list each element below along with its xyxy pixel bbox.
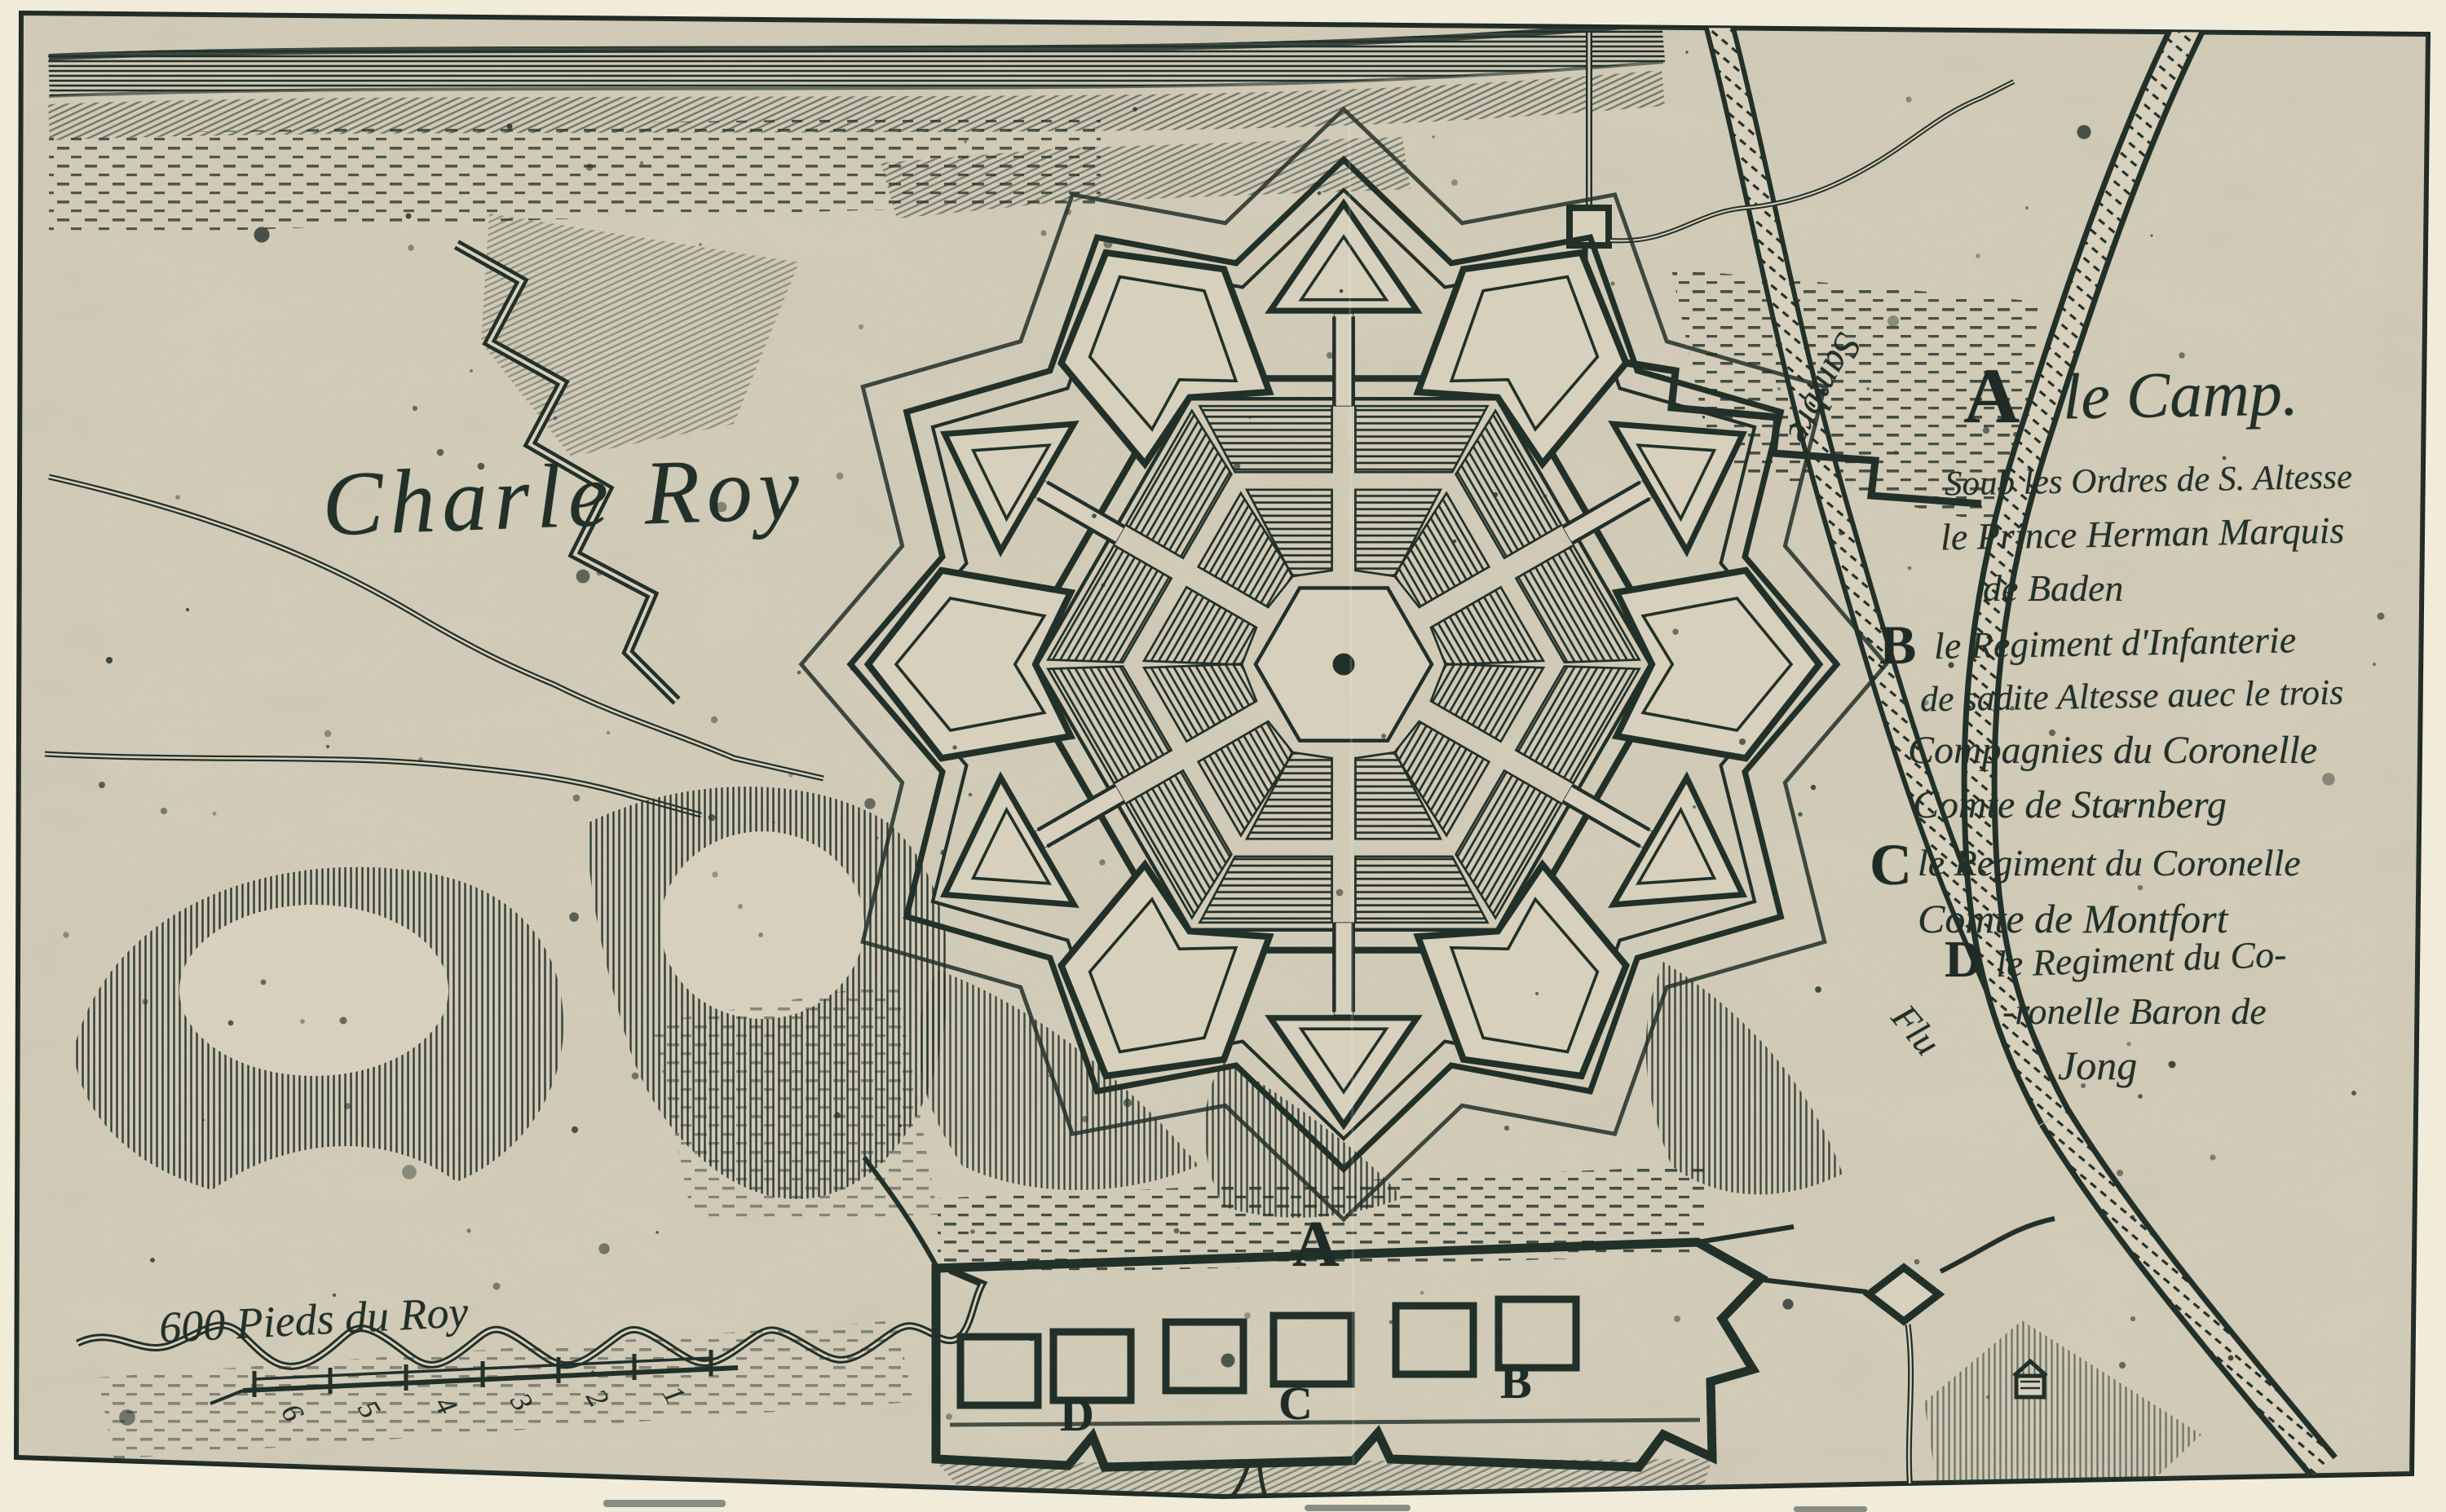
camp-marker-a: A (1292, 1208, 1340, 1282)
legend-line: le Regiment d'Infanterie (1934, 618, 2297, 668)
camp-letter-c: C (1278, 1376, 1313, 1430)
legend-line: -ronelle Baron de (2002, 990, 2267, 1033)
legend-line: Compagnies du Coronelle (1908, 728, 2317, 773)
legend-line: Jong (2058, 1042, 2137, 1089)
legend-key-a: A (1963, 350, 2020, 441)
legend-line: le Prince Herman Marquis (1940, 509, 2345, 559)
engraved-map-charleroi: Charle Roy Sambre Flu A le Camp. Soub le… (0, 0, 2446, 1512)
legend-line: de sadite Altesse auec le trois (1920, 671, 2344, 720)
legend-key-b: B (1879, 613, 1916, 677)
place-label-charleroi: Charle Roy (320, 436, 807, 558)
legend-line: le Regiment du Coronelle (1918, 841, 2301, 884)
camp-letter-d: D (1060, 1387, 1094, 1442)
legend-line: Comte de Starnberg (1913, 782, 2227, 827)
legend-title-a: le Camp. (2062, 356, 2298, 434)
legend-key-d: D (1945, 929, 1982, 990)
legend-line: de Baden (1983, 566, 2123, 610)
legend-key-c: C (1870, 831, 1912, 899)
margin-smudges (603, 1500, 1867, 1512)
legend-line: Soub les Ordres de S. Altesse (1945, 457, 2353, 505)
camp-letter-b: B (1500, 1355, 1532, 1409)
